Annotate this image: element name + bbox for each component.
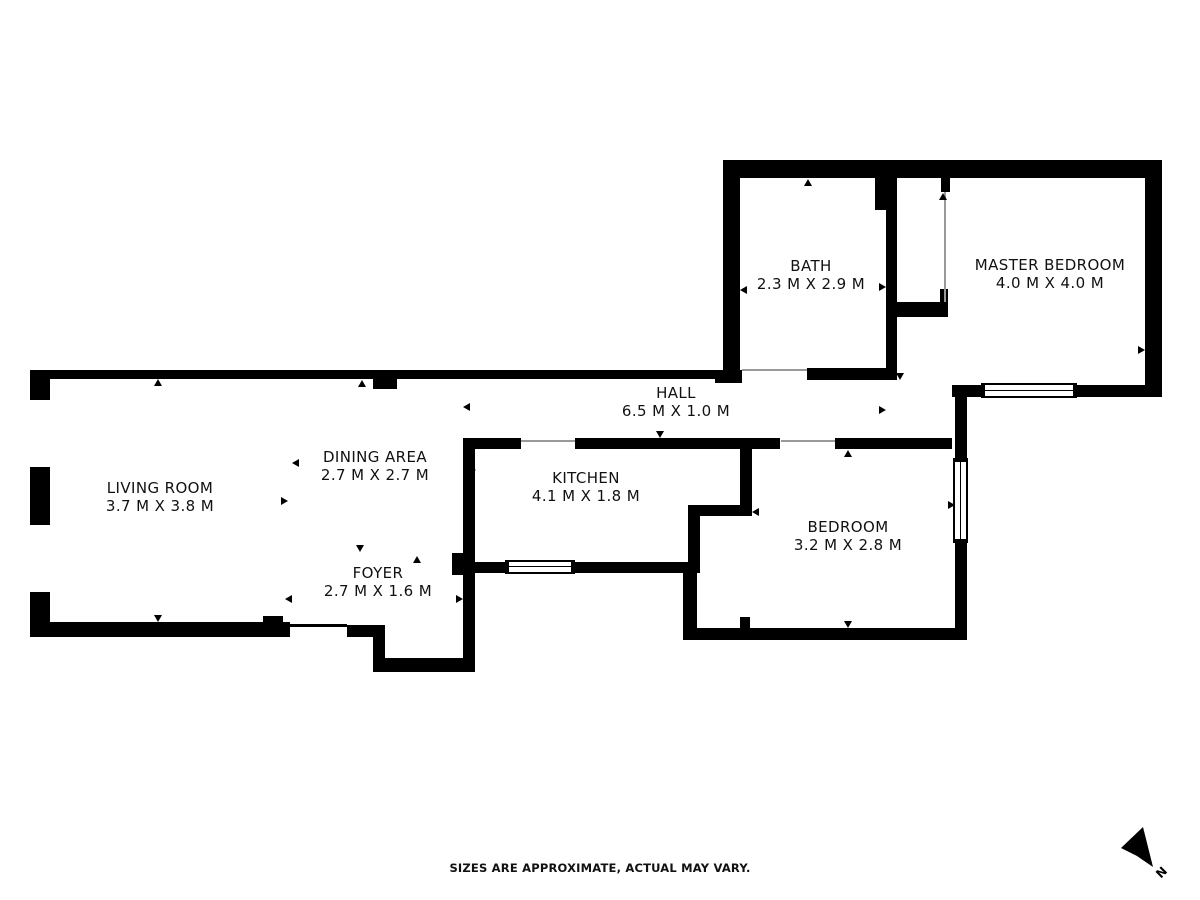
wall-segment (373, 379, 397, 389)
wall-tick-icon (808, 373, 816, 380)
wall-segment (347, 625, 385, 637)
room-name: DINING AREA (321, 448, 429, 466)
wall-tick-icon (292, 459, 299, 467)
room-size: 2.7 M X 1.6 M (324, 582, 432, 600)
wall-tick-icon (154, 615, 162, 622)
wall-tick-icon (879, 283, 886, 291)
north-label: N (1153, 864, 1170, 881)
room-name: HALL (622, 384, 730, 402)
wall-tick-icon (285, 595, 292, 603)
window (953, 458, 968, 543)
wall-segment (373, 658, 472, 672)
wall-segment (30, 622, 290, 637)
wall-tick-icon (948, 501, 955, 509)
wall-tick-icon (358, 380, 366, 387)
room-size: 2.7 M X 2.7 M (321, 466, 429, 484)
wall-tick-icon (43, 493, 50, 501)
wall-tick-icon (879, 406, 886, 414)
room-label-kitchen: KITCHEN 4.1 M X 1.8 M (532, 469, 640, 505)
wall-segment (893, 302, 948, 317)
wall-segment (875, 178, 897, 210)
room-label-living-room: LIVING ROOM 3.7 M X 3.8 M (106, 479, 214, 515)
wall-segment (1145, 170, 1162, 397)
wall-tick-icon (896, 373, 904, 380)
wall-tick-icon (740, 286, 747, 294)
room-name: LIVING ROOM (106, 479, 214, 497)
room-size: 2.3 M X 2.9 M (757, 275, 865, 293)
room-size: 3.7 M X 3.8 M (106, 497, 214, 515)
door-line (781, 440, 835, 442)
disclaimer-text: SIZES ARE APPROXIMATE, ACTUAL MAY VARY. (449, 861, 750, 875)
floor-plan-canvas: LIVING ROOM 3.7 M X 3.8 M DINING AREA 2.… (0, 0, 1200, 900)
room-label-dining-area: DINING AREA 2.7 M X 2.7 M (321, 448, 429, 484)
window (981, 383, 1077, 398)
wall-segment (573, 562, 688, 573)
room-size: 6.5 M X 1.0 M (622, 402, 730, 420)
room-name: BATH (757, 257, 865, 275)
wall-segment (263, 616, 283, 622)
wall-segment (30, 370, 715, 379)
wall-tick-icon (456, 595, 463, 603)
wall-segment (955, 397, 967, 460)
wall-segment (955, 541, 967, 640)
wall-segment (688, 505, 752, 516)
wall-tick-icon (356, 545, 364, 552)
room-size: 4.1 M X 1.8 M (532, 487, 640, 505)
wall-tick-icon (804, 179, 812, 186)
wall-segment (835, 438, 952, 449)
room-name: BEDROOM (794, 518, 902, 536)
wall-tick-icon (281, 497, 288, 505)
wall-tick-icon (1138, 346, 1145, 354)
door-line (521, 440, 575, 442)
wall-tick-icon (844, 621, 852, 628)
wall-segment (683, 628, 967, 640)
wall-segment (463, 438, 521, 449)
wall-tick-icon (413, 556, 421, 563)
wall-tick-icon (154, 379, 162, 386)
wall-tick-icon (656, 431, 664, 438)
wall-segment (723, 160, 1162, 178)
wall-segment (941, 178, 950, 192)
room-name: MASTER BEDROOM (975, 256, 1125, 274)
wall-segment (688, 516, 700, 573)
wall-segment (715, 370, 742, 383)
wall-tick-icon (463, 403, 470, 411)
wall-segment (452, 562, 507, 573)
wall-segment (807, 368, 890, 380)
wall-tick-icon (469, 466, 476, 474)
room-size: 3.2 M X 2.8 M (794, 536, 902, 554)
room-label-bedroom: BEDROOM 3.2 M X 2.8 M (794, 518, 902, 554)
wall-tick-icon (939, 193, 947, 200)
room-size: 4.0 M X 4.0 M (975, 274, 1125, 292)
window (505, 560, 575, 574)
wall-segment (952, 385, 983, 397)
wall-segment (575, 438, 780, 449)
room-label-hall: HALL 6.5 M X 1.0 M (622, 384, 730, 420)
room-label-bath: BATH 2.3 M X 2.9 M (757, 257, 865, 293)
room-label-master-bedroom: MASTER BEDROOM 4.0 M X 4.0 M (975, 256, 1125, 292)
room-label-foyer: FOYER 2.7 M X 1.6 M (324, 564, 432, 600)
door-line (742, 369, 807, 371)
north-arrow-icon: N (1106, 812, 1181, 897)
wall-segment (723, 178, 740, 370)
room-name: FOYER (324, 564, 432, 582)
wall-tick-icon (752, 508, 759, 516)
entry-door-line (290, 624, 347, 627)
room-name: KITCHEN (532, 469, 640, 487)
wall-tick-icon (844, 450, 852, 457)
door-line (944, 192, 946, 302)
wall-segment (740, 617, 750, 628)
